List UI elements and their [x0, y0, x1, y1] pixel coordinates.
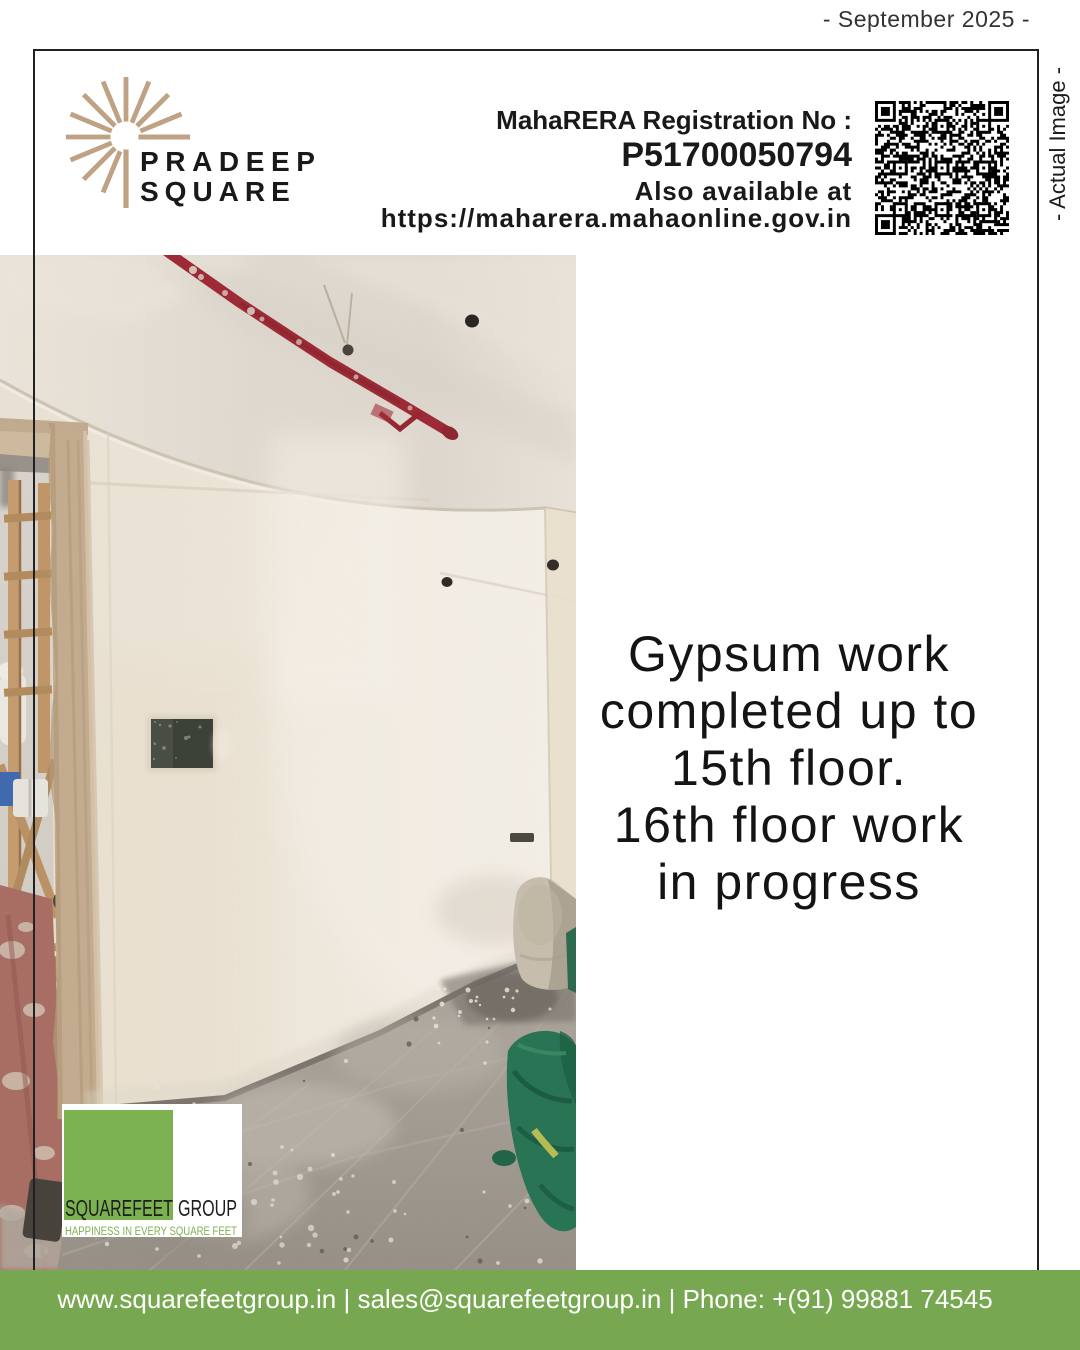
- svg-text:HAPPINESS IN EVERY SQUARE FEET: HAPPINESS IN EVERY SQUARE FEET: [65, 1226, 237, 1237]
- svg-text:SQUAREFEET: SQUAREFEET: [65, 1195, 173, 1221]
- svg-text:GROUP: GROUP: [178, 1195, 237, 1221]
